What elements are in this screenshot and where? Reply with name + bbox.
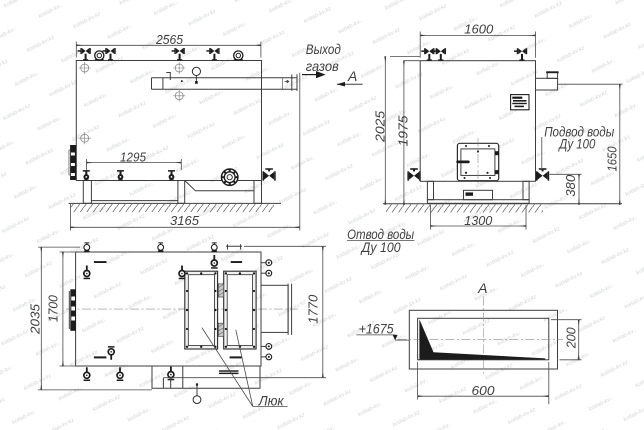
svg-text:1295: 1295 — [120, 149, 147, 164]
svg-text:2035: 2035 — [28, 303, 43, 335]
svg-text:380: 380 — [563, 174, 578, 197]
svg-text:600: 600 — [472, 383, 496, 398]
svg-text:+1675: +1675 — [359, 320, 394, 336]
svg-text:200: 200 — [563, 327, 578, 350]
svg-text:А: А — [477, 280, 487, 296]
svg-text:1650: 1650 — [605, 146, 620, 172]
svg-text:А: А — [347, 68, 357, 84]
svg-text:1975: 1975 — [396, 115, 411, 147]
svg-text:2565: 2565 — [155, 32, 184, 47]
svg-text:Ду 100: Ду 100 — [558, 135, 596, 151]
svg-text:1770: 1770 — [305, 294, 320, 324]
svg-text:1600: 1600 — [464, 21, 494, 36]
svg-text:3165: 3165 — [170, 213, 200, 228]
svg-text:Люк: Люк — [258, 393, 285, 409]
svg-text:Ду 100: Ду 100 — [360, 239, 401, 255]
svg-text:Выход: Выход — [306, 41, 341, 57]
svg-text:1700: 1700 — [45, 294, 60, 322]
svg-text:газов: газов — [306, 58, 339, 74]
svg-text:1300: 1300 — [464, 213, 493, 228]
svg-text:2025: 2025 — [372, 110, 387, 143]
